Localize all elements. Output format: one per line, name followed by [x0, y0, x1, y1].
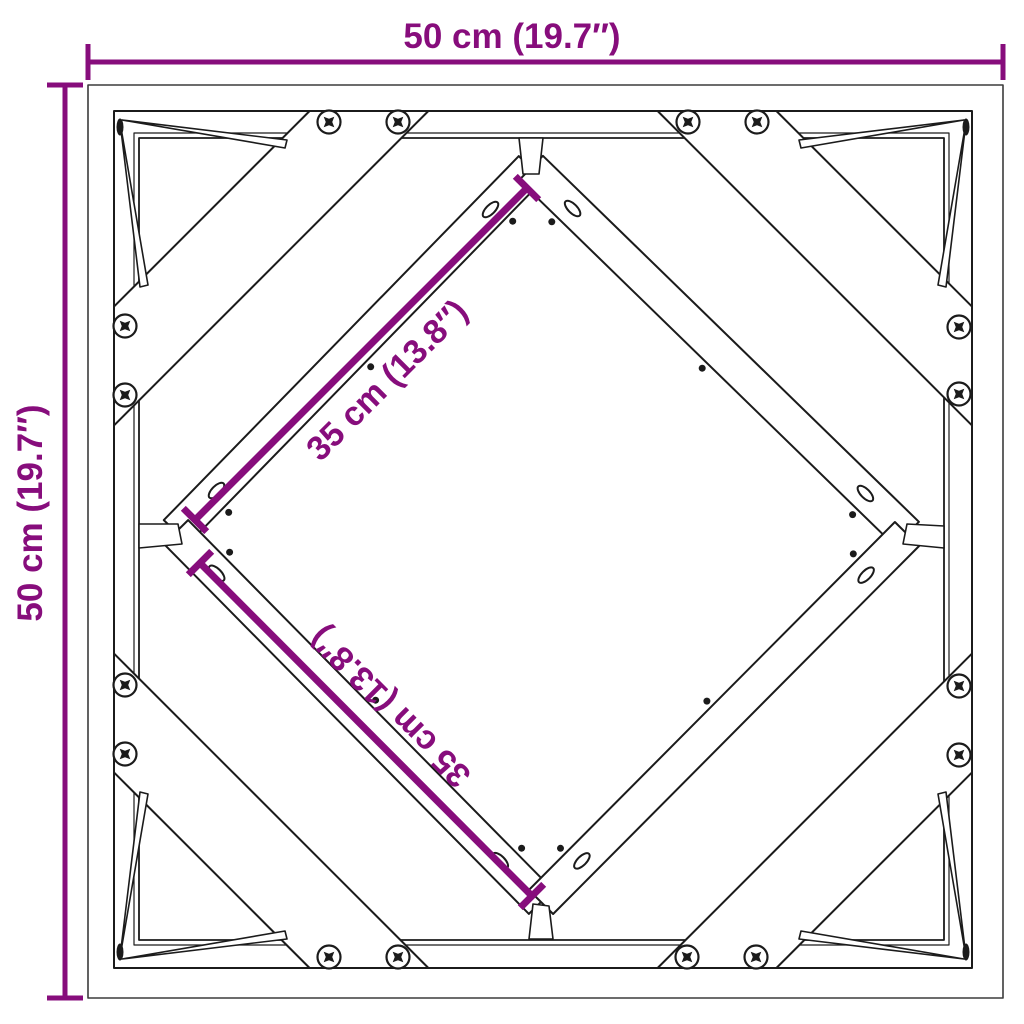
screw-icon: [114, 384, 137, 407]
screw-icon: [948, 744, 971, 767]
screw-icon: [387, 946, 410, 969]
screw-icon: [746, 111, 769, 134]
vertex-notch-top: [519, 138, 543, 174]
corner-pin: [117, 119, 124, 136]
product-dimension-diagram-page: 50 cm (19.7″) 50 cm (19.7″) 35 cm (13.8″…: [0, 0, 1024, 1024]
screw-icon: [948, 316, 971, 339]
corner-pin: [117, 944, 124, 961]
frame-top-view-diagram: 50 cm (19.7″) 50 cm (19.7″) 35 cm (13.8″…: [0, 0, 1024, 1024]
screw-dot: [509, 218, 516, 225]
screw-icon: [387, 111, 410, 134]
screw-icon: [318, 111, 341, 134]
screw-dot: [518, 845, 525, 852]
corner-pin: [963, 119, 970, 136]
vertex-notch-right: [903, 524, 944, 548]
screw-dot: [225, 509, 232, 516]
width-dimension-label: 50 cm (19.7″): [403, 17, 620, 56]
screw-dot: [699, 365, 706, 372]
screw-dot: [548, 218, 555, 225]
screw-dot: [557, 845, 564, 852]
screw-icon: [745, 946, 768, 969]
screw-icon: [114, 743, 137, 766]
screw-dot: [849, 511, 856, 518]
height-dimension-label: 50 cm (19.7″): [11, 404, 50, 621]
screw-dot: [703, 698, 710, 705]
screw-icon: [948, 383, 971, 406]
screw-icon: [114, 315, 137, 338]
vertex-notch-left: [139, 524, 182, 548]
vertex-notch-bottom: [529, 904, 553, 939]
corner-pin: [963, 944, 970, 961]
screw-dot: [226, 549, 233, 556]
screw-dot: [850, 550, 857, 557]
screw-icon: [677, 111, 700, 134]
screw-icon: [318, 946, 341, 969]
screw-icon: [114, 674, 137, 697]
screw-icon: [948, 675, 971, 698]
screw-icon: [676, 946, 699, 969]
